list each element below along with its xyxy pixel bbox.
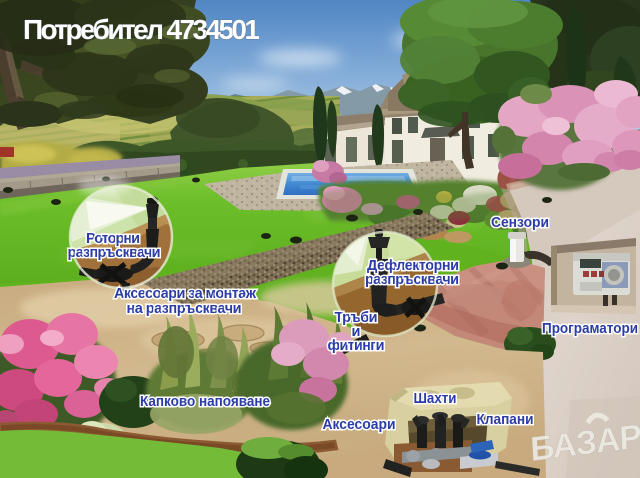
svg-text:Потребител 4734501: Потребител 4734501 bbox=[23, 14, 260, 45]
svg-text:Програматори: Програматори bbox=[542, 320, 638, 337]
svg-text:Аксесоари за монтаж: Аксесоари за монтаж bbox=[114, 286, 257, 302]
svg-text:Шахти: Шахти bbox=[414, 391, 457, 407]
svg-text:Клапани: Клапани bbox=[477, 412, 534, 428]
svg-text:разпръсквачи: разпръсквачи bbox=[365, 272, 459, 288]
svg-text:Капково напояване: Капково напояване bbox=[140, 394, 270, 410]
svg-text:Аксесоари: Аксесоари bbox=[323, 417, 396, 433]
svg-text:разпръсквачи: разпръсквачи bbox=[68, 245, 161, 261]
svg-text:на разпръсквачи: на разпръсквачи bbox=[127, 301, 242, 317]
svg-text:Сензори: Сензори bbox=[491, 215, 549, 231]
svg-text:фитинги: фитинги bbox=[328, 338, 385, 354]
